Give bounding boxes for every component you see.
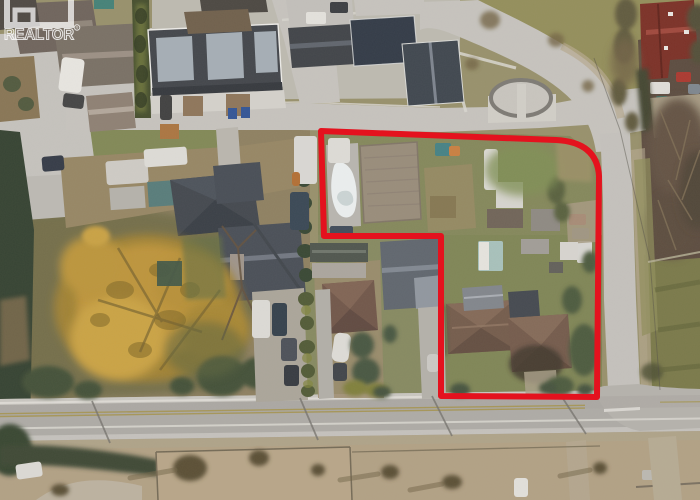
svg-text:REALTOR: REALTOR bbox=[4, 27, 74, 44]
svg-text:R: R bbox=[76, 25, 79, 30]
